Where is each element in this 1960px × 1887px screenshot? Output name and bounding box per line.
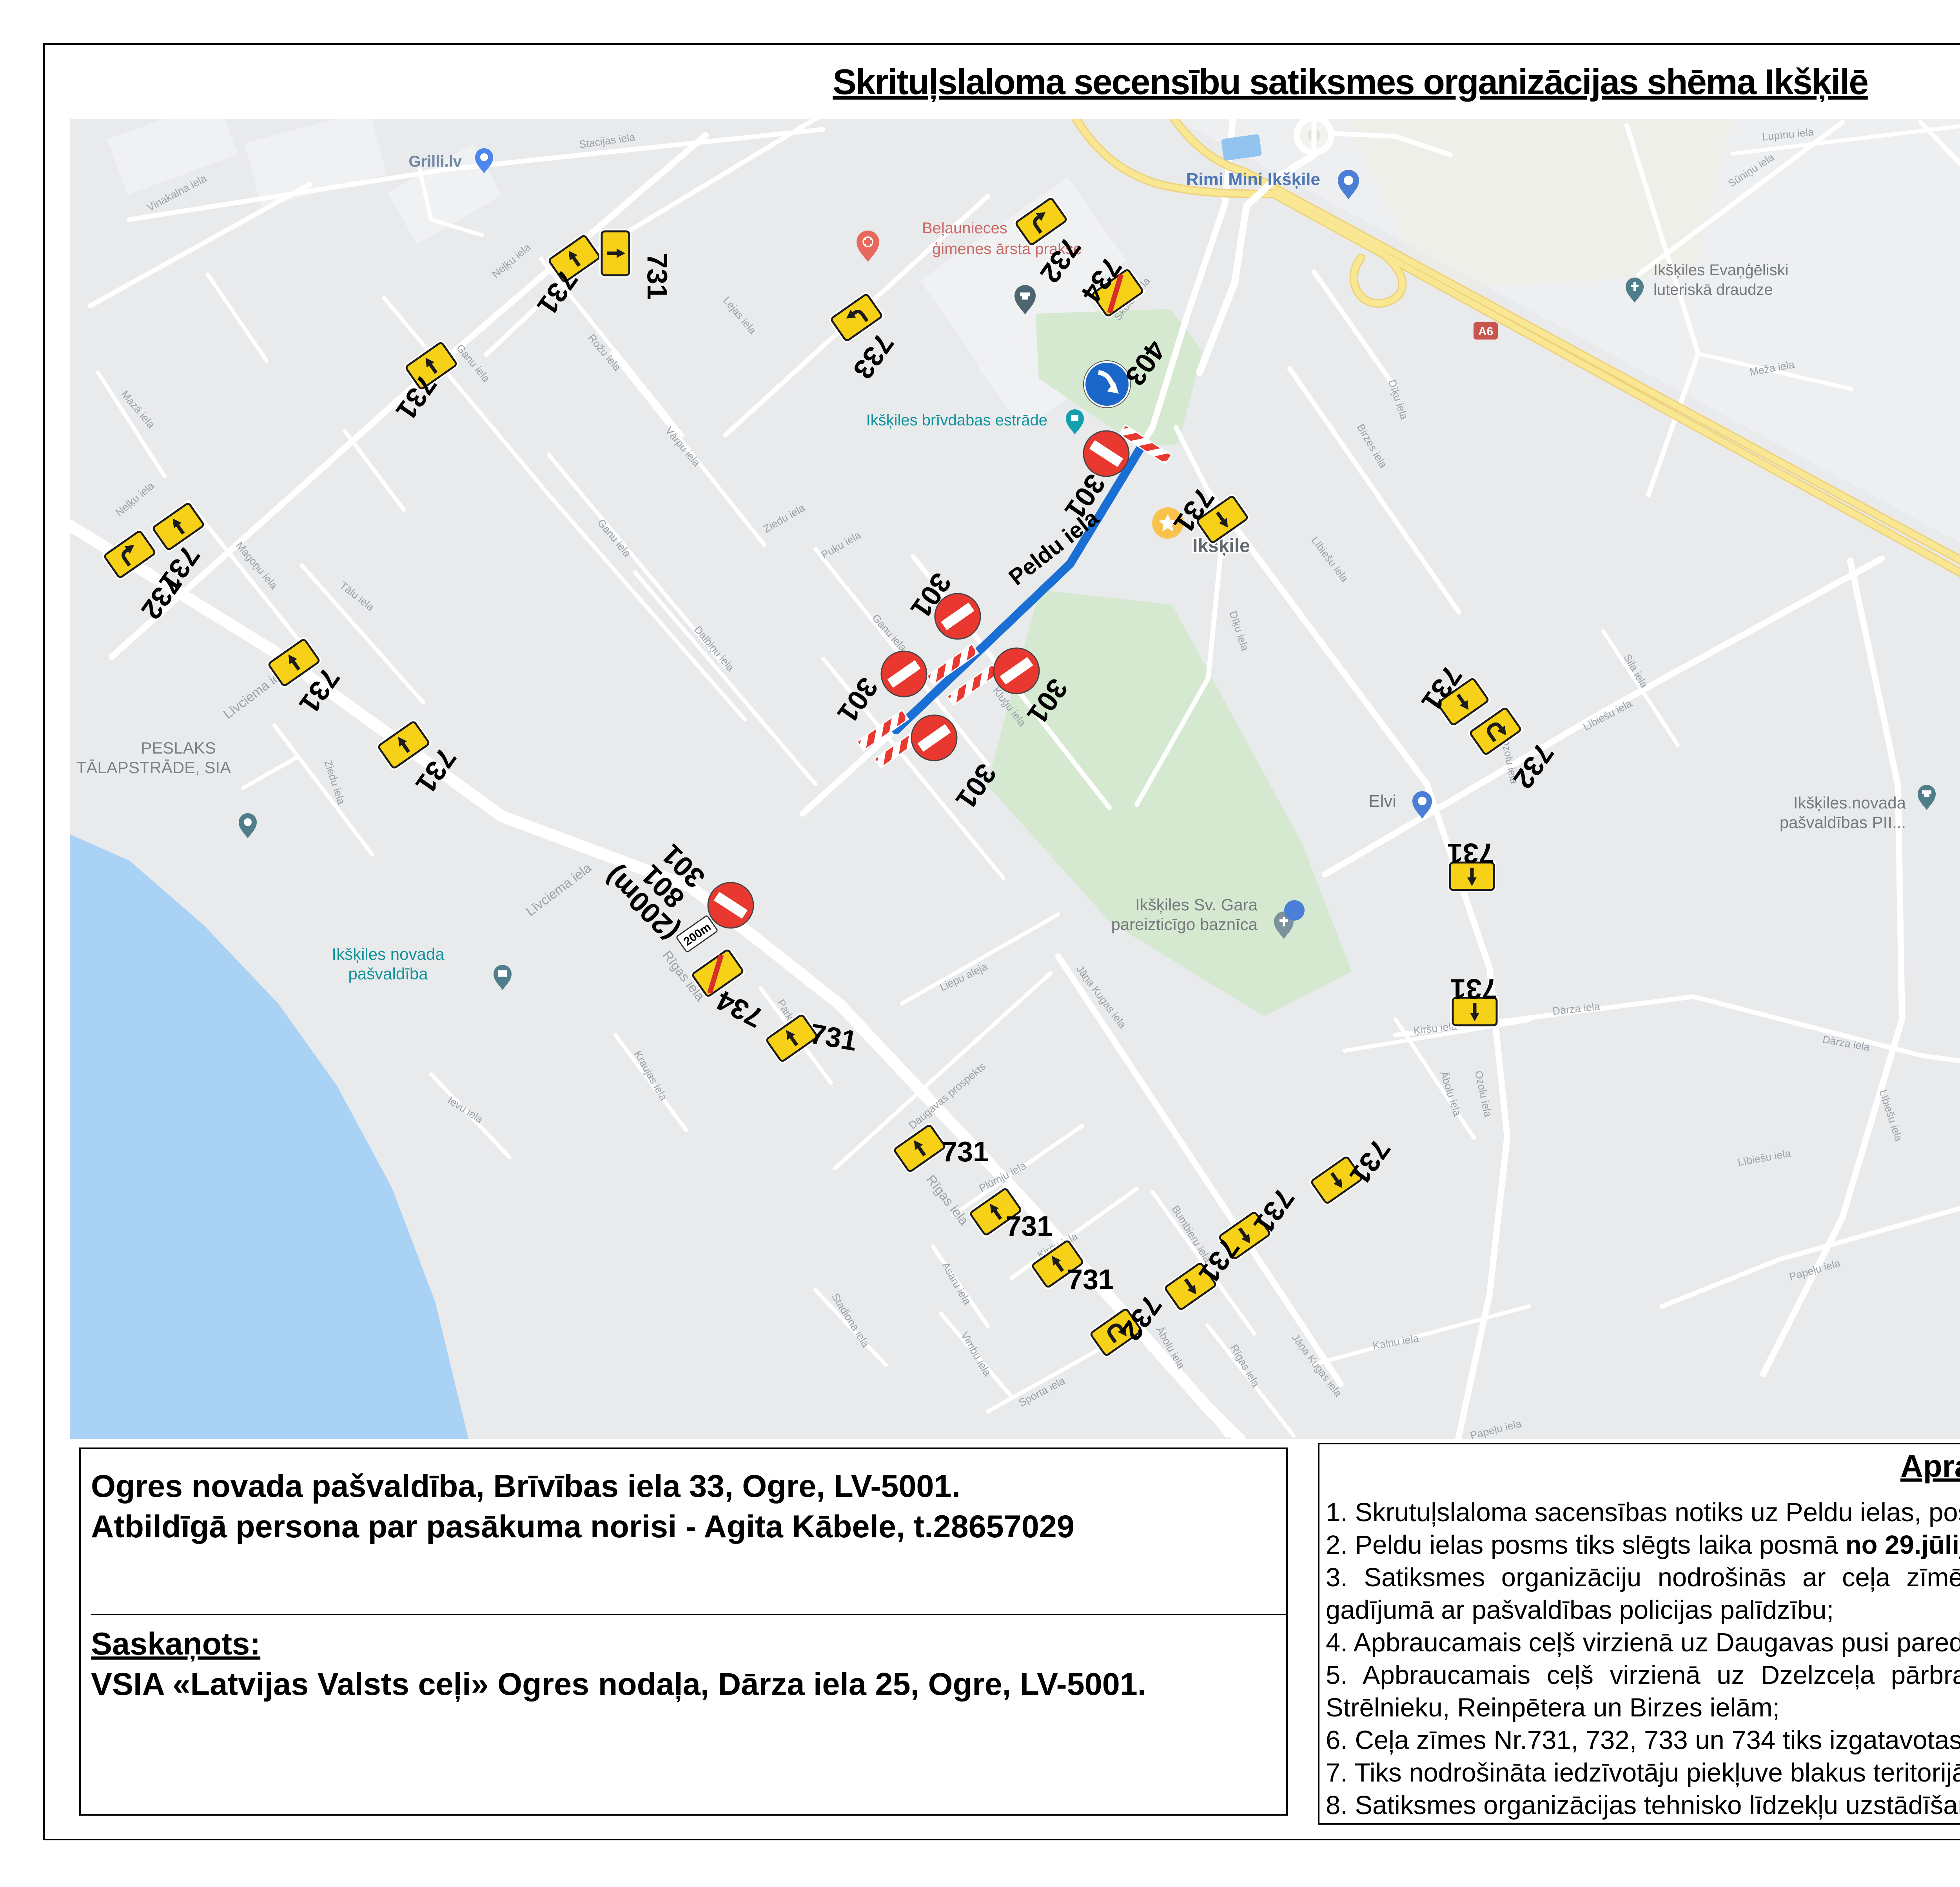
svg-text:Rimi Mini Ikšķile: Rimi Mini Ikšķile xyxy=(1186,170,1320,189)
svg-text:731: 731 xyxy=(1447,837,1494,869)
svg-text:pareizticīgo baznīca: pareizticīgo baznīca xyxy=(1111,915,1258,934)
svg-text:Ikšķiles brīvdabas estrāde: Ikšķiles brīvdabas estrāde xyxy=(866,412,1047,429)
svg-text:731: 731 xyxy=(1450,973,1497,1004)
svg-text:Ikšķiles.novada: Ikšķiles.novada xyxy=(1793,794,1906,812)
svg-text:Beļaunieces: Beļaunieces xyxy=(922,220,1007,237)
svg-text:luteriskā draudze: luteriskā draudze xyxy=(1653,281,1773,298)
svg-text:PESLAKS: PESLAKS xyxy=(141,739,216,757)
svg-text:731: 731 xyxy=(942,1136,989,1168)
svg-text:Ikšķiles novada: Ikšķiles novada xyxy=(332,945,445,963)
svg-text:A6: A6 xyxy=(1478,325,1493,338)
svg-text:Grilli.lv: Grilli.lv xyxy=(408,153,462,170)
svg-text:731: 731 xyxy=(1005,1211,1053,1242)
svg-text:731: 731 xyxy=(641,253,673,300)
svg-text:Ikšķiles Sv. Gara: Ikšķiles Sv. Gara xyxy=(1135,895,1258,914)
svg-text:pašvaldības PII...: pašvaldības PII... xyxy=(1780,813,1906,832)
svg-text:731: 731 xyxy=(1067,1264,1114,1295)
svg-text:TĀLAPSTRĀDE, SIA: TĀLAPSTRĀDE, SIA xyxy=(76,758,231,777)
svg-text:Elvi: Elvi xyxy=(1368,792,1396,811)
svg-text:pašvaldība: pašvaldība xyxy=(348,964,428,983)
svg-text:Ikšķiles Evaņģēliski: Ikšķiles Evaņģēliski xyxy=(1653,262,1789,279)
